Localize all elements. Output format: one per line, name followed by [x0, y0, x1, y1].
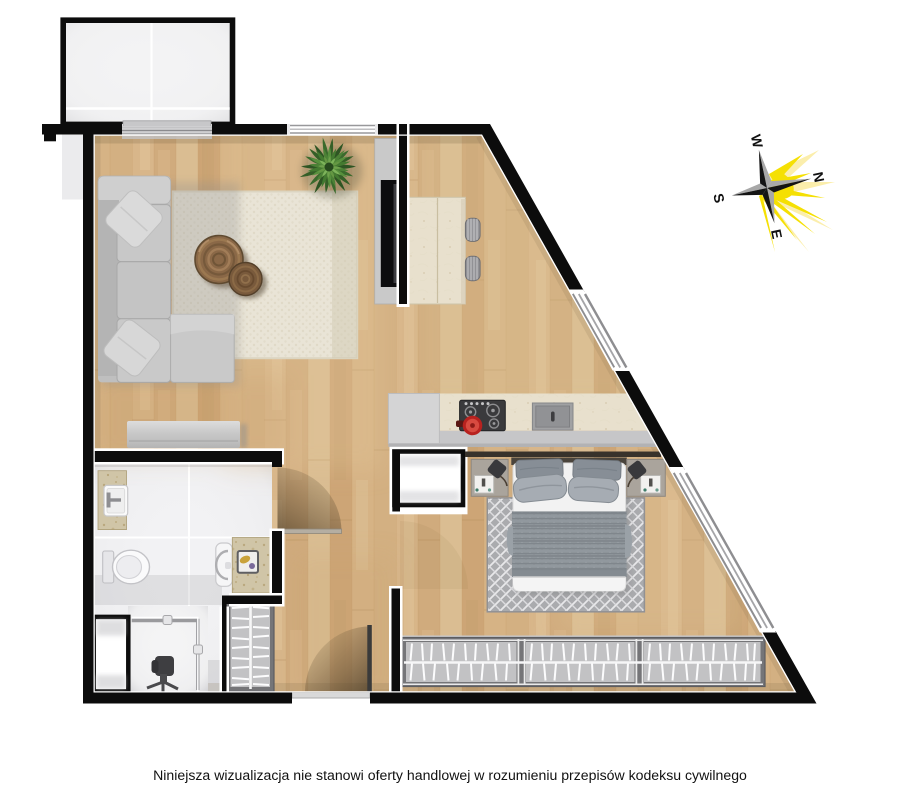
svg-text:Niniejsza wizualizacja nie sta: Niniejsza wizualizacja nie stanowi ofert…	[153, 767, 747, 783]
